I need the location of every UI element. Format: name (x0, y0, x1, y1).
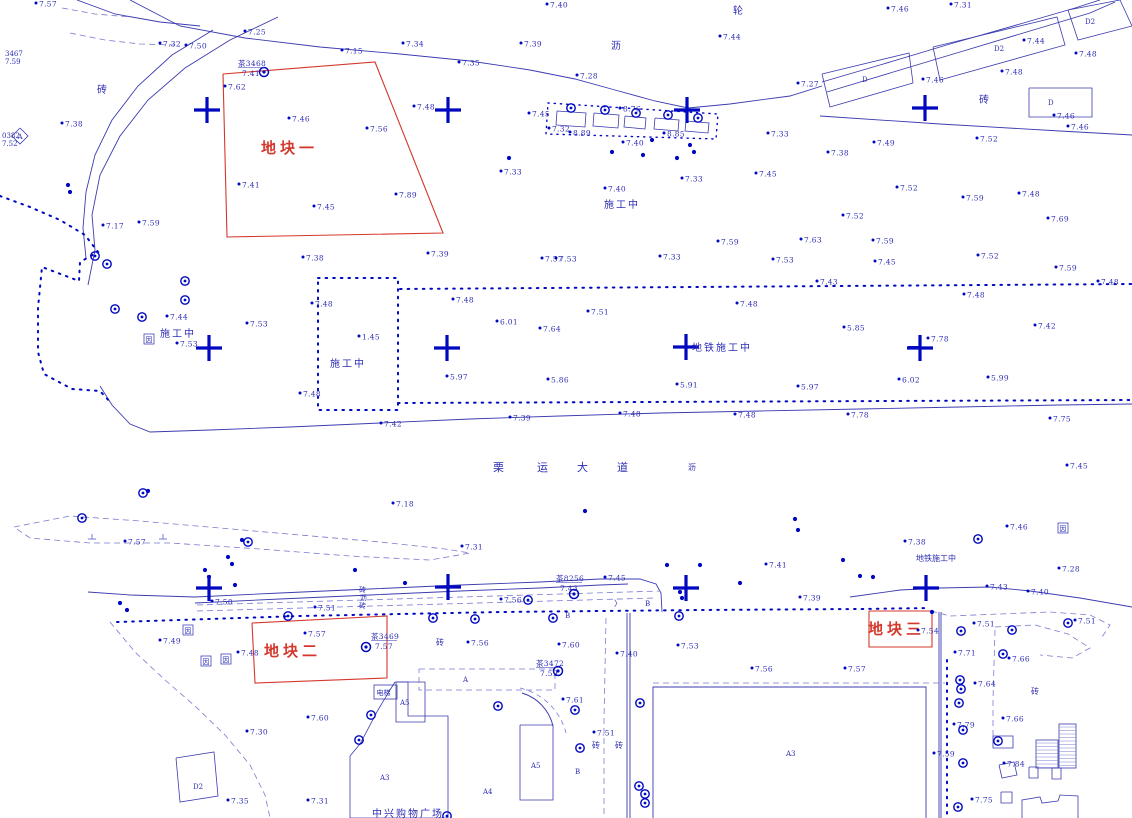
spot-elevation-dot (237, 651, 240, 654)
map-label: 3467 (5, 50, 23, 58)
map-label: 沥 (360, 593, 367, 602)
tree-box-label: 因 (184, 627, 191, 635)
spot-elevation-dot (311, 302, 314, 305)
spot-elevation-value: 6.01 (500, 318, 518, 327)
spot-elevation-value: 7.48 (738, 411, 756, 420)
survey-dot (353, 568, 357, 572)
spot-elevation-value: 7.57 (128, 538, 146, 547)
map-label: 7.52 (2, 140, 18, 148)
map-label: 砖 (97, 83, 109, 96)
spot-elevation-dot (950, 3, 953, 6)
spot-elevation-value: 7.45 (532, 110, 550, 119)
parcel-label-3: 地块三 (868, 620, 925, 638)
map-label: A5 (530, 762, 541, 770)
spot-elevation-value: 7.56 (471, 639, 489, 648)
map-label: 砖 (359, 601, 366, 610)
spot-elevation-dot (953, 723, 956, 726)
manhole-icon (960, 630, 963, 633)
spot-elevation-value: 7.59 (1059, 264, 1077, 273)
spot-elevation-dot (767, 132, 770, 135)
spot-elevation-value: 7.45 (608, 574, 626, 583)
map-label: 运 (537, 461, 548, 474)
fence-dotted (0, 196, 112, 404)
spot-elevation-dot (799, 596, 802, 599)
survey-dot (675, 156, 679, 160)
spot-elevation-value: 7.42 (1038, 322, 1056, 331)
spot-elevation-value: 7.49 (877, 139, 895, 148)
spot-elevation-value: 7.39 (803, 594, 821, 603)
survey-dot (125, 608, 129, 612)
map-label: B (575, 768, 580, 776)
survey-dot (858, 574, 862, 578)
spot-elevation-value: 7.41 (242, 181, 260, 190)
map-label: 栗 (493, 461, 504, 474)
spot-elevation-dot (873, 141, 876, 144)
spot-elevation-dot (872, 239, 875, 242)
spot-elevation-value: 7.25 (248, 28, 266, 37)
spot-elevation-value: 7.31 (465, 543, 483, 552)
spot-elevation-value: 8.76 (623, 105, 641, 114)
building-outline (1068, 0, 1132, 40)
spot-elevation-dot (604, 576, 607, 579)
survey-dot (680, 596, 684, 600)
spot-elevation-dot (917, 629, 920, 632)
spot-elevation-dot (1006, 525, 1009, 528)
spot-elevation-value: 7.56 (504, 596, 522, 605)
spot-elevation-value: 7.39 (524, 40, 542, 49)
benchmark-elev: 7.41 (242, 69, 260, 78)
spot-elevation-dot (380, 422, 383, 425)
spot-elevation-dot (547, 378, 550, 381)
map-label: D2 (994, 45, 1004, 53)
spot-elevation-value: 7.84 (1007, 760, 1025, 769)
spot-elevation-dot (1058, 567, 1061, 570)
manhole-icon (604, 109, 607, 112)
manhole-icon (579, 747, 582, 750)
spot-elevation-value: 7.51 (977, 620, 995, 629)
spot-elevation-value: 7.33 (663, 253, 681, 262)
spot-elevation-value: 7.32 (552, 125, 570, 134)
spot-elevation-value: 7.35 (231, 797, 249, 806)
spot-elevation-dot (500, 170, 503, 173)
manhole-icon (697, 117, 700, 120)
spot-elevation-value: 7.50 (189, 42, 207, 51)
spot-elevation-dot (1047, 217, 1050, 220)
spot-elevation-value: 7.51 (597, 729, 615, 738)
spot-elevation-value: 6.02 (902, 376, 920, 385)
manhole-icon (497, 705, 500, 708)
spot-elevation-dot (974, 682, 977, 685)
spot-elevation-dot (1001, 70, 1004, 73)
manhole-icon (81, 517, 84, 520)
map-label: 砖 (592, 740, 600, 750)
spot-elevation-value: 7.56 (370, 125, 388, 134)
spot-elevation-value: 7.75 (1053, 415, 1071, 424)
spot-elevation-dot (1066, 464, 1069, 467)
road-line (77, 0, 200, 26)
map-label: A5 (399, 699, 410, 707)
spot-elevation-value: 7.48 (417, 103, 435, 112)
spot-elevation-value: 7.51 (591, 308, 609, 317)
spot-elevation-dot (159, 42, 162, 45)
map-label: 轮 (733, 4, 745, 17)
survey-dot (507, 156, 511, 160)
spot-elevation-value: 7.79 (957, 721, 975, 730)
spot-elevation-dot (1002, 717, 1005, 720)
spot-elevation-dot (307, 799, 310, 802)
map-label: 砖 (359, 585, 366, 594)
benchmark-name: 茶3468 (238, 58, 266, 68)
survey-dot (403, 581, 407, 585)
spot-elevation-dot (1053, 114, 1056, 117)
spot-elevation-value: 7.46 (1057, 112, 1075, 121)
manhole-icon (552, 617, 555, 620)
map-label: B (645, 600, 650, 608)
spot-elevation-value: 7.78 (851, 411, 869, 420)
spot-elevation-dot (461, 545, 464, 548)
spot-elevation-value: 7.78 (931, 335, 949, 344)
building-outline (1022, 795, 1078, 818)
manhole-icon (114, 308, 117, 311)
manhole-icon (574, 709, 577, 712)
map-label: 〉 (614, 599, 622, 608)
tree-box-label: 因 (202, 658, 209, 666)
spot-elevation-value: 7.44 (170, 313, 188, 322)
spot-elevation-value: 7.44 (1027, 37, 1045, 46)
benchmark-icon (364, 645, 367, 648)
spot-elevation-value: 7.35 (462, 59, 480, 68)
spot-elevation-dot (211, 600, 214, 603)
survey-dot (146, 489, 150, 493)
manhole-icon (639, 702, 642, 705)
spot-elevation-value: 7.43 (990, 583, 1008, 592)
spot-elevation-value: 7.41 (769, 561, 787, 570)
spot-elevation-dot (185, 44, 188, 47)
spot-elevation-dot (569, 131, 572, 134)
survey-dot (930, 610, 934, 614)
spot-elevation-dot (307, 716, 310, 719)
map-label: D2 (1085, 18, 1095, 26)
spot-elevation-value: 7.34 (406, 40, 424, 49)
spot-elevation-dot (816, 280, 819, 283)
spot-elevation-dot (452, 298, 455, 301)
spot-elevation-value: 8.89 (573, 129, 591, 138)
spot-elevation-dot (1003, 762, 1006, 765)
manhole-icon (287, 615, 290, 618)
spot-elevation-dot (986, 585, 989, 588)
spot-elevation-dot (751, 667, 754, 670)
map-label: 地铁施工中 (692, 341, 752, 354)
spot-elevation-dot (395, 193, 398, 196)
building-outline (1001, 792, 1012, 803)
boundary-dashed (604, 618, 606, 818)
spot-elevation-value: 7.46 (926, 76, 944, 85)
map-label: 砖 (1031, 686, 1039, 696)
spot-elevation-value: 7.48 (241, 649, 259, 658)
spot-elevation-dot (898, 378, 901, 381)
spot-elevation-value: 7.53 (250, 320, 268, 329)
spot-elevation-dot (299, 392, 302, 395)
survey-dot (871, 575, 875, 579)
spot-elevation-value: 7.53 (180, 340, 198, 349)
map-label: 沥 (611, 40, 623, 52)
spot-elevation-dot (800, 238, 803, 241)
spot-elevation-value: 7.64 (543, 325, 561, 334)
manhole-icon (958, 702, 961, 705)
spot-elevation-value: 7.59 (721, 238, 739, 247)
spot-elevation-value: 7.40 (608, 185, 626, 194)
survey-dot (641, 153, 645, 157)
spot-elevation-dot (35, 2, 38, 5)
spot-elevation-dot (528, 112, 531, 115)
map-label: A3 (379, 774, 390, 782)
spot-elevation-value: 7.40 (620, 650, 638, 659)
spot-elevation-dot (1075, 52, 1078, 55)
grid-cross (912, 95, 938, 121)
spot-elevation-value: 7.64 (978, 680, 996, 689)
spot-elevation-dot (619, 107, 622, 110)
survey-dot (698, 563, 702, 567)
spot-elevation-dot (413, 105, 416, 108)
manhole-icon (370, 714, 373, 717)
spot-elevation-dot (659, 255, 662, 258)
spot-elevation-dot (1049, 417, 1052, 420)
survey-dot (233, 583, 237, 587)
corridor-outline (419, 669, 555, 690)
spot-elevation-dot (246, 322, 249, 325)
spot-elevation-value: 7.48 (967, 291, 985, 300)
spot-elevation-dot (827, 151, 830, 154)
spot-elevation-value: 7.46 (1010, 523, 1028, 532)
fence-dotted (398, 400, 1132, 403)
building-outline (593, 113, 619, 128)
benchmark-elev: 7.57 (375, 642, 393, 651)
map-label: A3 (785, 750, 796, 758)
spot-elevation-dot (576, 74, 579, 77)
spot-elevation-dot (358, 335, 361, 338)
spot-elevation-value: 7.66 (1012, 655, 1030, 664)
spot-elevation-dot (366, 127, 369, 130)
grid-cross (435, 574, 461, 600)
manhole-icon (446, 815, 449, 818)
map-label: 沥 (688, 463, 696, 472)
survey-dot (68, 190, 72, 194)
fence-dotted (400, 284, 1132, 289)
tree-box-label: 因 (222, 656, 229, 664)
spot-elevation-value: 7.48 (740, 300, 758, 309)
spot-elevation-value: 7.38 (831, 149, 849, 158)
building-outline (1029, 767, 1038, 778)
spot-elevation-dot (546, 3, 549, 6)
spot-elevation-value: 7.60 (311, 714, 329, 723)
spot-elevation-value: 7.59 (142, 219, 160, 228)
spot-elevation-value: 7.51 (1078, 617, 1096, 626)
survey-dot (240, 538, 244, 542)
spot-elevation-dot (302, 256, 305, 259)
benchmark-elev: 7.59 (540, 669, 558, 678)
spot-elevation-dot (548, 127, 551, 130)
spot-elevation-dot (765, 563, 768, 566)
spot-elevation-value: 7.39 (431, 250, 449, 259)
spot-elevation-value: 7.63 (804, 236, 822, 245)
parcel-label-1: 地块一 (261, 139, 318, 157)
spot-elevation-dot (562, 698, 565, 701)
survey-dot (66, 183, 70, 187)
spot-elevation-value: 7.38 (65, 120, 83, 129)
spot-elevation-value: 7.28 (580, 72, 598, 81)
spot-elevation-dot (681, 177, 684, 180)
spot-elevation-dot (159, 639, 162, 642)
map-label: 施工中 (160, 327, 196, 340)
manhole-icon (644, 802, 647, 805)
benchmark-name: 茶3469 (371, 631, 399, 641)
survey-dot (230, 562, 234, 566)
spot-elevation-dot (977, 254, 980, 257)
survey-dot (738, 581, 742, 585)
spot-elevation-value: 7.57 (308, 630, 326, 639)
spot-elevation-value: 7.57 (39, 0, 57, 9)
spot-elevation-dot (138, 221, 141, 224)
road-line (100, 386, 1132, 432)
benchmark-name: 茶8256 (556, 573, 584, 583)
survey-dot (678, 590, 682, 594)
spot-elevation-dot (622, 141, 625, 144)
spot-elevation-dot (246, 730, 249, 733)
map-label: D (862, 76, 868, 84)
map-label: 施工中 (330, 357, 366, 370)
spot-elevation-value: 7.52 (980, 135, 998, 144)
spot-elevation-dot (102, 224, 105, 227)
spot-elevation-value: 7.48 (315, 300, 333, 309)
spot-elevation-dot (797, 385, 800, 388)
survey-map-stage: 地块一地块二地块三7.577.327.507.257.157.347.357.3… (0, 0, 1132, 818)
building-outline (176, 752, 218, 802)
spot-elevation-value: 7.45 (317, 203, 335, 212)
manhole-icon (1002, 653, 1005, 656)
building-outline (624, 116, 646, 129)
spot-elevation-value: 7.89 (399, 191, 417, 200)
spot-elevation-value: 7.46 (1071, 123, 1089, 132)
survey-dot (650, 138, 654, 142)
manhole-icon (358, 739, 361, 742)
grid-cross (673, 575, 699, 601)
spot-elevation-dot (927, 337, 930, 340)
spot-elevation-value: 7.60 (562, 641, 580, 650)
spot-elevation-dot (663, 132, 666, 135)
building-outline (350, 682, 448, 818)
spot-elevation-value: 7.33 (685, 175, 703, 184)
map-label: 道 (617, 460, 628, 474)
spot-elevation-value: 7.48 (456, 296, 474, 305)
elevator-label: 电梯 (377, 688, 391, 697)
spot-elevation-value: 5.97 (450, 373, 468, 382)
spot-elevation-value: 1.45 (362, 333, 380, 342)
construction-zone-outline (318, 278, 398, 410)
spot-elevation-value: 7.61 (566, 696, 584, 705)
road-line (130, 0, 822, 108)
spot-elevation-dot (341, 49, 344, 52)
manhole-icon (1067, 622, 1070, 625)
spot-elevation-value: 7.57 (848, 665, 866, 674)
spot-elevation-value: 8.85 (667, 130, 685, 139)
spot-elevation-value: 7.48 (1005, 68, 1023, 77)
survey-dot (665, 563, 669, 567)
spot-elevation-value: 7.30 (250, 728, 268, 737)
spot-elevation-dot (1018, 192, 1021, 195)
spot-elevation-dot (467, 641, 470, 644)
survey-dot (583, 509, 587, 513)
manhole-icon (184, 280, 187, 283)
spot-elevation-value: 5.99 (991, 374, 1009, 383)
spot-elevation-dot (604, 187, 607, 190)
manhole-icon (960, 688, 963, 691)
spot-elevation-dot (772, 258, 775, 261)
tree-box-label: 因 (1059, 525, 1066, 533)
benchmark-elev: 7.43 (560, 584, 578, 593)
spot-elevation-dot (755, 172, 758, 175)
spot-elevation-dot (238, 183, 241, 186)
parcel-label-2: 地块二 (264, 642, 321, 660)
spot-elevation-value: 7.32 (163, 40, 181, 49)
spot-elevation-dot (558, 643, 561, 646)
spot-elevation-value: 7.45 (759, 170, 777, 179)
map-label: 施工中 (604, 198, 640, 211)
map-label: 砖 (436, 637, 444, 647)
manhole-icon (527, 599, 530, 602)
manhole-icon (570, 107, 573, 110)
spot-elevation-value: 7.69 (1051, 215, 1069, 224)
spot-elevation-dot (844, 667, 847, 670)
spot-elevation-value: 7.48 (1022, 190, 1040, 199)
manhole-icon (106, 263, 109, 266)
spot-elevation-dot (392, 502, 395, 505)
spot-elevation-value: 7.46 (292, 115, 310, 124)
spot-elevation-dot (593, 731, 596, 734)
road-line (88, 17, 278, 285)
manhole-icon (678, 615, 681, 618)
spot-elevation-value: 7.52 (981, 252, 999, 261)
spot-elevation-value: 7.48 (1079, 50, 1097, 59)
spot-elevation-value: 7.49 (163, 637, 181, 646)
spot-elevation-dot (555, 257, 558, 260)
survey-dot (796, 528, 800, 532)
spot-elevation-dot (987, 376, 990, 379)
spot-elevation-value: 7.44 (723, 33, 741, 42)
spot-elevation-value: 7.46 (891, 5, 909, 14)
grid-cross (435, 97, 461, 123)
spot-elevation-value: 7.59 (937, 750, 955, 759)
spot-elevation-dot (677, 644, 680, 647)
spot-elevation-dot (619, 412, 622, 415)
manhole-icon (957, 806, 960, 809)
spot-elevation-value: 7.50 (215, 598, 233, 607)
spot-elevation-dot (427, 252, 430, 255)
canopy-arc (522, 693, 553, 726)
spot-elevation-dot (61, 122, 64, 125)
spot-elevation-value: 5.97 (801, 383, 819, 392)
spot-elevation-value: 7.53 (776, 256, 794, 265)
survey-dot (688, 143, 692, 147)
survey-map-canvas: 地块一地块二地块三7.577.327.507.257.157.347.357.3… (0, 0, 1132, 818)
tree-box-label: 因 (145, 336, 152, 344)
spot-elevation-value: 7.43 (820, 278, 838, 287)
spot-elevation-value: 7.53 (559, 255, 577, 264)
spot-elevation-value: 7.62 (228, 83, 246, 92)
spot-elevation-dot (244, 30, 247, 33)
spot-elevation-value: 7.18 (396, 500, 414, 509)
spot-elevation-value: 7.40 (550, 1, 568, 10)
spot-elevation-value: 7.15 (345, 47, 363, 56)
